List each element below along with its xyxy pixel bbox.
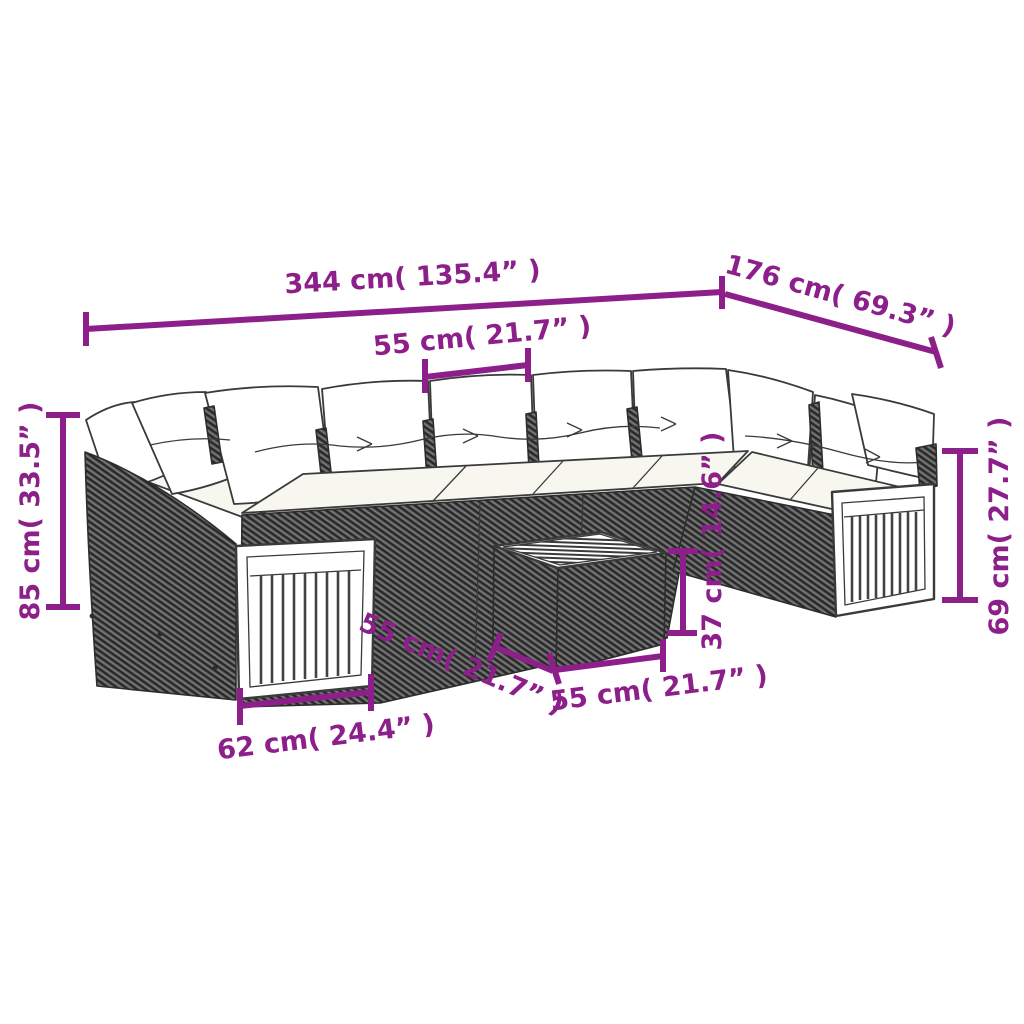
left-armrest-wood-panel (236, 539, 375, 699)
right-armrest-wood-panel (832, 484, 934, 616)
dimension-arm-section-width-label: 62 cm( 24.4” ) (215, 709, 436, 766)
product-image: 344 cm( 135.4” ) 176 cm( 69.3” ) 55 cm( … (0, 0, 1024, 1024)
dimension-arm-height-label: 69 cm( 27.7” ) (984, 417, 1015, 636)
product-dimension-diagram: 344 cm( 135.4” ) 176 cm( 69.3” ) 55 cm( … (0, 0, 1024, 1024)
dimension-total-depth: 176 cm( 69.3” ) (722, 249, 959, 368)
dimension-total-width-label: 344 cm( 135.4” ) (284, 255, 542, 301)
table-right-face (556, 553, 666, 672)
dimension-seat-module-width-label: 55 cm( 21.7” ) (372, 311, 593, 363)
dimension-table-height-label: 37 cm( 14.6” ) (697, 432, 728, 651)
dimension-arm-height: 69 cm( 27.7” ) (942, 417, 1015, 636)
dimension-back-height: 85 cm( 33.5” ) (15, 402, 80, 621)
coffee-table (493, 532, 666, 672)
dimension-back-height-label: 85 cm( 33.5” ) (15, 402, 46, 621)
